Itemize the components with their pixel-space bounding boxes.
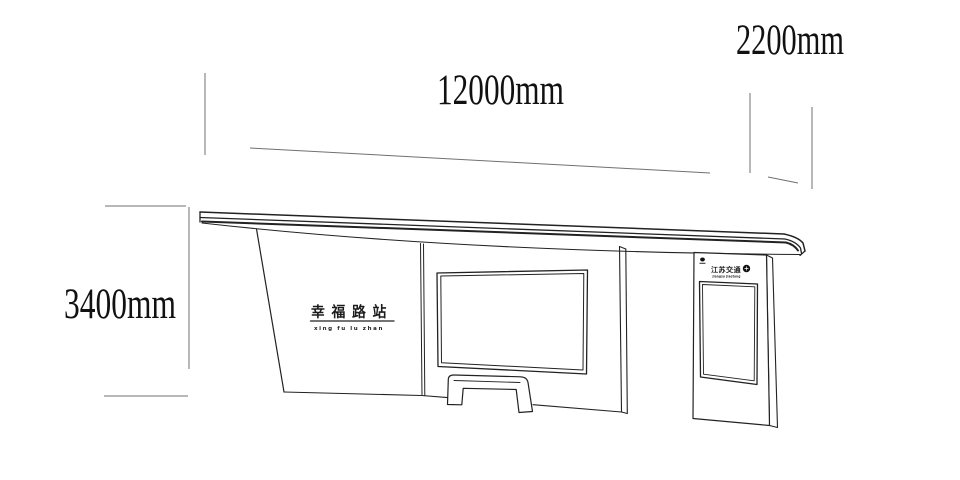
panel-right-top-join: [620, 247, 626, 250]
panel-bottom-edge-right-b: [533, 405, 622, 412]
info-screen-outer-frame: [437, 270, 588, 374]
panel-right-edge-front: [620, 247, 622, 413]
dim-width-label: 12000mm: [437, 67, 564, 114]
station-name-sign: 幸福路站 xing fu lu zhan: [311, 303, 395, 332]
kiosk-brand-text: 江苏交通: [711, 265, 742, 274]
panel-divider-line-b: [424, 244, 425, 396]
shelter-elevation-drawing: 12000mm 2200mm 3400mm: [0, 0, 960, 480]
kiosk-screen-outer-frame: [700, 282, 758, 385]
back-panel: 幸福路站 xing fu lu zhan: [257, 229, 628, 414]
panel-bottom-edge-left: [284, 392, 421, 396]
station-name-chinese: 幸福路站: [311, 303, 393, 321]
panel-divider-line-a: [421, 244, 423, 396]
canopy-roof: [200, 212, 805, 256]
panel-left-edge: [257, 229, 285, 392]
panel-right-edge-side: [626, 249, 628, 414]
panel-right-bottom-join: [622, 412, 628, 414]
dim-width-line: [250, 148, 710, 173]
dim-depth-label: 2200mm: [736, 17, 844, 64]
bench: [448, 375, 533, 413]
dim-depth-line: [768, 177, 798, 183]
drawing-canvas: 12000mm 2200mm 3400mm: [0, 0, 960, 480]
station-name-pinyin: xing fu lu zhan: [314, 326, 384, 332]
kiosk-top-emblem-underline: [700, 263, 706, 264]
dim-height-label: 3400mm: [64, 281, 176, 328]
kiosk-top-emblem-icon: [700, 258, 705, 262]
roof-underside-edge: [202, 223, 800, 255]
kiosk-brand-subtext: jiangsu jiaotong: [712, 275, 741, 279]
kiosk-column: 江苏交通 jiangsu jiaotong: [693, 253, 778, 428]
panel-bottom-edge-right-a: [422, 396, 448, 398]
